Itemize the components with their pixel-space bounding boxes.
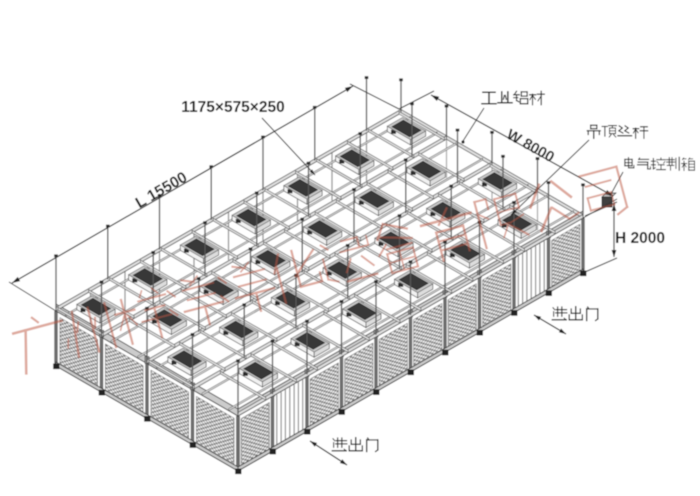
svg-text:1175×575×250: 1175×575×250	[181, 99, 284, 116]
svg-text:H 2000: H 2000	[615, 230, 665, 247]
